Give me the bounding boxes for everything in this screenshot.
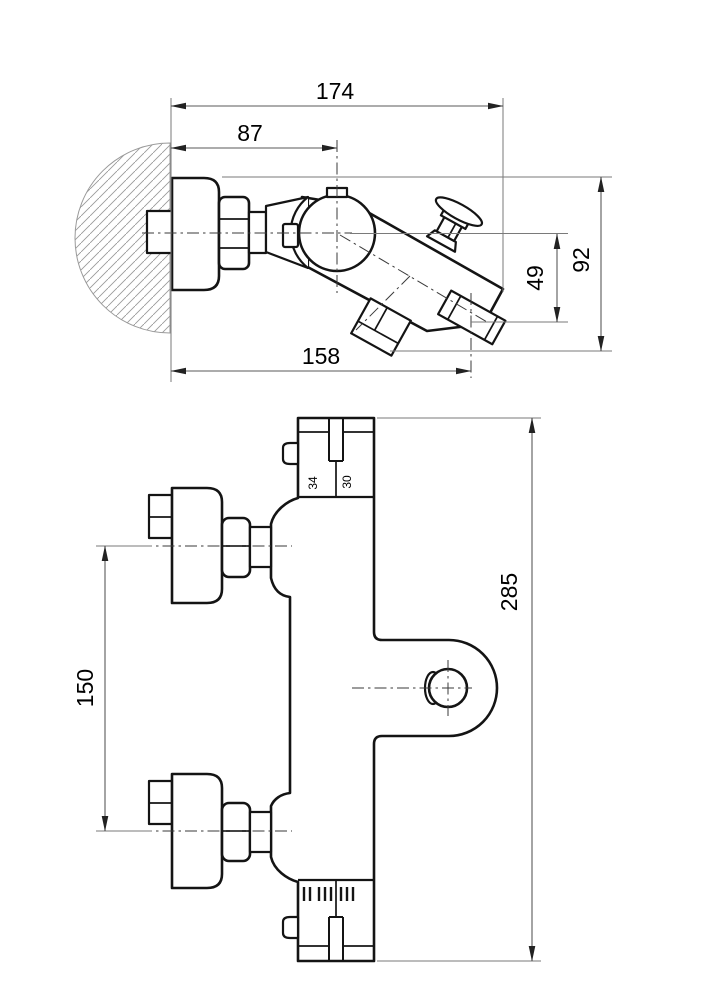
dimension-87: 87: [171, 120, 337, 148]
temp-scale-label-30: 30: [340, 475, 354, 489]
side-view: 174 87 92 49 158: [75, 78, 612, 382]
dim-label-total-height-side: 92: [568, 247, 594, 273]
technical-drawing: 174 87 92 49 158: [0, 0, 707, 1000]
union-nut-bottom: [222, 803, 250, 861]
dim-label-inlet-centres: 150: [72, 669, 98, 707]
union-connector-bottom: [250, 812, 271, 852]
dim-label-total-depth: 174: [316, 78, 355, 104]
front-view: 34 30: [72, 418, 541, 961]
dim-label-wall-to-outlet: 158: [302, 343, 340, 369]
temp-scale-label-34: 34: [306, 476, 320, 490]
dimension-158: 158: [171, 343, 471, 371]
dim-label-total-height-front: 285: [496, 573, 522, 611]
temp-limit-button: [283, 224, 298, 247]
handle-tab-bottom: [283, 917, 298, 938]
union-connector-top: [250, 527, 271, 567]
escutcheon-side: [172, 178, 219, 290]
drawing-page: 174 87 92 49 158: [0, 0, 707, 1000]
wall-pipe-stub: [147, 211, 172, 253]
union-nut-top: [222, 518, 250, 577]
dim-label-wall-to-cartridge: 87: [237, 120, 263, 146]
dim-label-axis-to-spout: 49: [522, 265, 548, 291]
handle-tab-top: [283, 443, 298, 464]
dimension-150: 150: [72, 546, 152, 831]
